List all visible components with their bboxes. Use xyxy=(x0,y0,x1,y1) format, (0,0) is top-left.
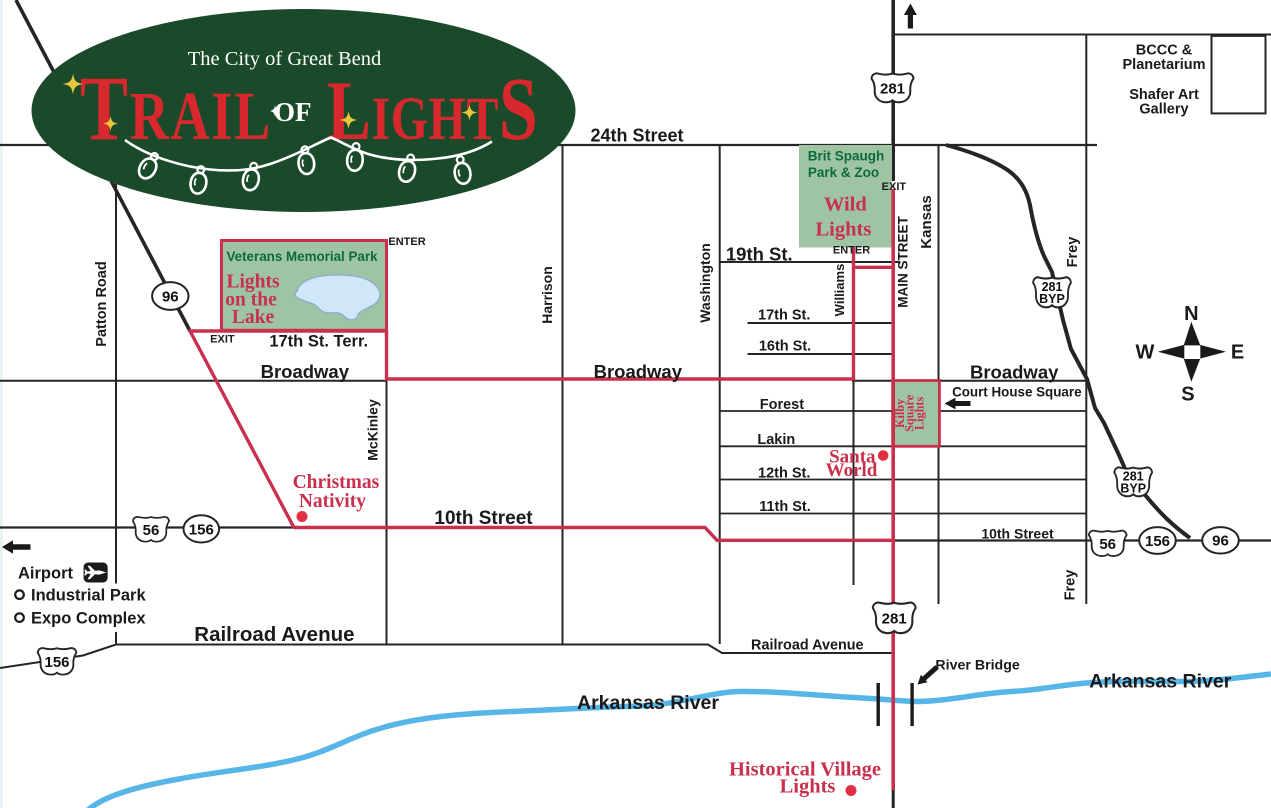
svg-text:BYP: BYP xyxy=(1039,292,1065,306)
svg-text:MAIN STREET: MAIN STREET xyxy=(896,216,911,308)
svg-text:Court House Square: Court House Square xyxy=(952,385,1081,400)
svg-text:Park & Zoo: Park & Zoo xyxy=(808,165,879,180)
svg-text:OF: OF xyxy=(274,97,312,127)
svg-text:Railroad Avenue: Railroad Avenue xyxy=(751,638,864,654)
svg-text:Brit Spaugh: Brit Spaugh xyxy=(808,149,885,164)
svg-text:19th St.: 19th St. xyxy=(726,244,793,265)
svg-text:56: 56 xyxy=(1099,536,1116,553)
svg-text:17th St. Terr.: 17th St. Terr. xyxy=(269,333,368,351)
svg-text:96: 96 xyxy=(162,288,179,305)
svg-text:Broadway: Broadway xyxy=(261,361,350,382)
svg-text:Patton Road: Patton Road xyxy=(94,261,110,346)
svg-text:Industrial Park: Industrial Park xyxy=(31,587,146,605)
svg-text:ENTER: ENTER xyxy=(833,245,870,257)
svg-text:10th Street: 10th Street xyxy=(434,508,533,529)
svg-text:Harrison: Harrison xyxy=(539,266,555,324)
svg-text:Wild: Wild xyxy=(824,194,868,216)
svg-text:Frey: Frey xyxy=(1063,570,1079,601)
svg-text:Christmas: Christmas xyxy=(293,472,380,493)
svg-text:EXIT: EXIT xyxy=(210,334,235,346)
svg-text:Lake: Lake xyxy=(232,307,275,328)
svg-text:Kansas: Kansas xyxy=(918,195,935,248)
svg-text:Frey: Frey xyxy=(1065,237,1081,268)
svg-text:Veterans Memorial Park: Veterans Memorial Park xyxy=(226,249,378,264)
svg-text:11th St.: 11th St. xyxy=(759,499,811,515)
svg-text:96: 96 xyxy=(1212,533,1229,550)
svg-text:N: N xyxy=(1184,303,1198,325)
svg-text:Broadway: Broadway xyxy=(970,361,1059,382)
svg-text:Forest: Forest xyxy=(760,397,804,413)
svg-text:16th St.: 16th St. xyxy=(759,339,811,355)
svg-text:World: World xyxy=(826,460,878,481)
svg-text:Expo Complex: Expo Complex xyxy=(31,610,146,628)
svg-text:12th St.: 12th St. xyxy=(758,466,810,482)
svg-text:Nativity: Nativity xyxy=(299,491,366,512)
svg-text:281: 281 xyxy=(880,81,905,98)
svg-text:156: 156 xyxy=(1145,533,1170,550)
svg-text:Lakin: Lakin xyxy=(757,432,795,448)
svg-text:S: S xyxy=(1181,384,1194,406)
svg-text:Arkansas River: Arkansas River xyxy=(1089,671,1231,693)
svg-text:Broadway: Broadway xyxy=(594,361,683,382)
svg-text:Lights: Lights xyxy=(912,397,926,430)
svg-text:EXIT: EXIT xyxy=(882,181,907,193)
svg-text:10th Street: 10th Street xyxy=(981,526,1054,542)
svg-text:156: 156 xyxy=(44,654,69,671)
svg-text:Williams: Williams xyxy=(832,264,847,317)
svg-text:W: W xyxy=(1136,342,1155,364)
svg-text:Railroad Avenue: Railroad Avenue xyxy=(194,623,354,646)
svg-text:Gallery: Gallery xyxy=(1139,102,1188,118)
svg-text:River Bridge: River Bridge xyxy=(935,658,1019,674)
svg-text:ENTER: ENTER xyxy=(388,236,425,248)
svg-text:McKinley: McKinley xyxy=(365,399,381,461)
svg-text:17th St.: 17th St. xyxy=(758,308,810,324)
svg-text:Washington: Washington xyxy=(697,243,713,323)
svg-text:Airport: Airport xyxy=(18,565,74,583)
svg-text:E: E xyxy=(1231,342,1244,364)
svg-text:Planetarium: Planetarium xyxy=(1123,57,1206,73)
svg-text:24th Street: 24th Street xyxy=(590,126,683,146)
svg-text:281: 281 xyxy=(882,611,907,628)
svg-text:56: 56 xyxy=(143,522,160,539)
svg-text:Lights: Lights xyxy=(780,776,836,798)
svg-text:Arkansas River: Arkansas River xyxy=(577,692,719,714)
svg-text:Lights: Lights xyxy=(815,219,871,241)
svg-text:156: 156 xyxy=(189,521,214,538)
svg-text:BYP: BYP xyxy=(1120,482,1146,496)
